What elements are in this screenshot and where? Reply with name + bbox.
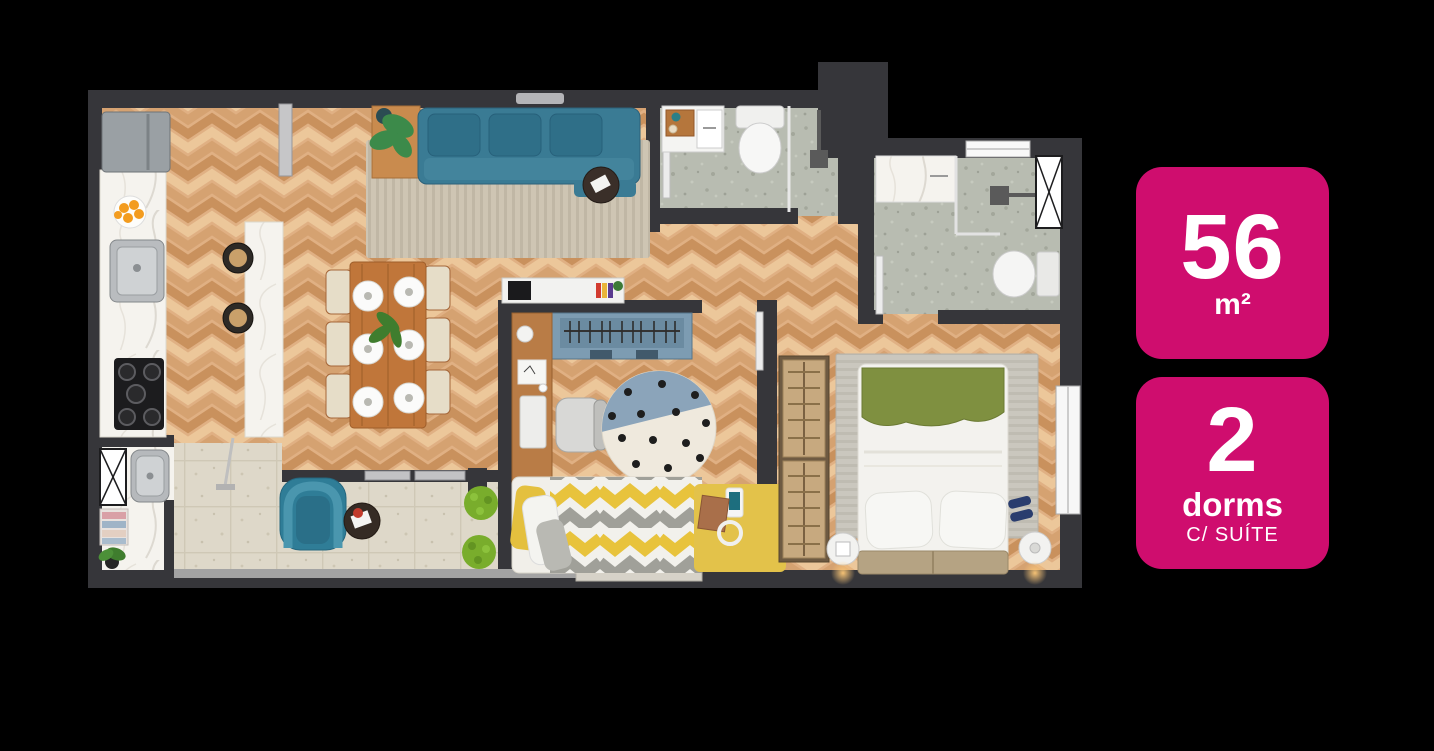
dorms-label: dorms (1182, 488, 1283, 523)
shower-head (810, 150, 828, 168)
topiary-bush (464, 486, 498, 520)
suite-bed (858, 364, 1008, 574)
shower-base (876, 156, 956, 202)
dorms-badge: 2 dorms C/ SUÍTE (1136, 377, 1329, 569)
kids-door-leaf (756, 312, 763, 370)
keyboard (520, 396, 546, 448)
entry-door-leaf (279, 104, 292, 176)
desk-chair (556, 398, 607, 452)
ac-unit (516, 93, 564, 104)
fridge (102, 112, 170, 172)
bar-stool (223, 243, 253, 273)
duct-shaft (100, 449, 126, 505)
duct-shaft (1036, 156, 1062, 228)
nightstand (827, 533, 859, 585)
area-unit: m² (1214, 290, 1251, 320)
towel-shelf (100, 509, 128, 545)
tv (508, 281, 531, 300)
desk-lamp (517, 326, 533, 342)
pillow (865, 490, 934, 549)
topiary-bush (462, 535, 496, 569)
pillow (939, 490, 1008, 549)
coffee-table (583, 167, 619, 203)
nightstand (1019, 532, 1051, 585)
desk (512, 313, 552, 490)
kids-bed (509, 477, 702, 573)
area-badge: 56 m² (1136, 167, 1329, 359)
book (698, 495, 729, 531)
play-mat (694, 484, 786, 572)
kids-wardrobe (552, 313, 692, 359)
bar-stool (223, 303, 253, 333)
page: 56 m² 2 dorms C/ SUÍTE (0, 0, 1434, 751)
laundry-sink (131, 450, 169, 502)
suite-bath-door-leaf (876, 256, 883, 314)
balcony-sliding-door (415, 471, 465, 480)
dorms-value: 2 (1206, 399, 1258, 482)
balcony-sliding-door (365, 471, 410, 480)
suite-wardrobe (779, 356, 829, 562)
balcony-table (344, 503, 380, 539)
toilet (993, 251, 1059, 297)
dorms-sublabel: C/ SUÍTE (1186, 523, 1278, 547)
balcony-armchair (280, 478, 346, 550)
toilet (736, 106, 784, 173)
area-value: 56 (1180, 206, 1284, 289)
dining-area (326, 262, 450, 428)
info-badges: 56 m² 2 dorms C/ SUÍTE (1136, 167, 1329, 569)
tv-console (502, 278, 624, 303)
